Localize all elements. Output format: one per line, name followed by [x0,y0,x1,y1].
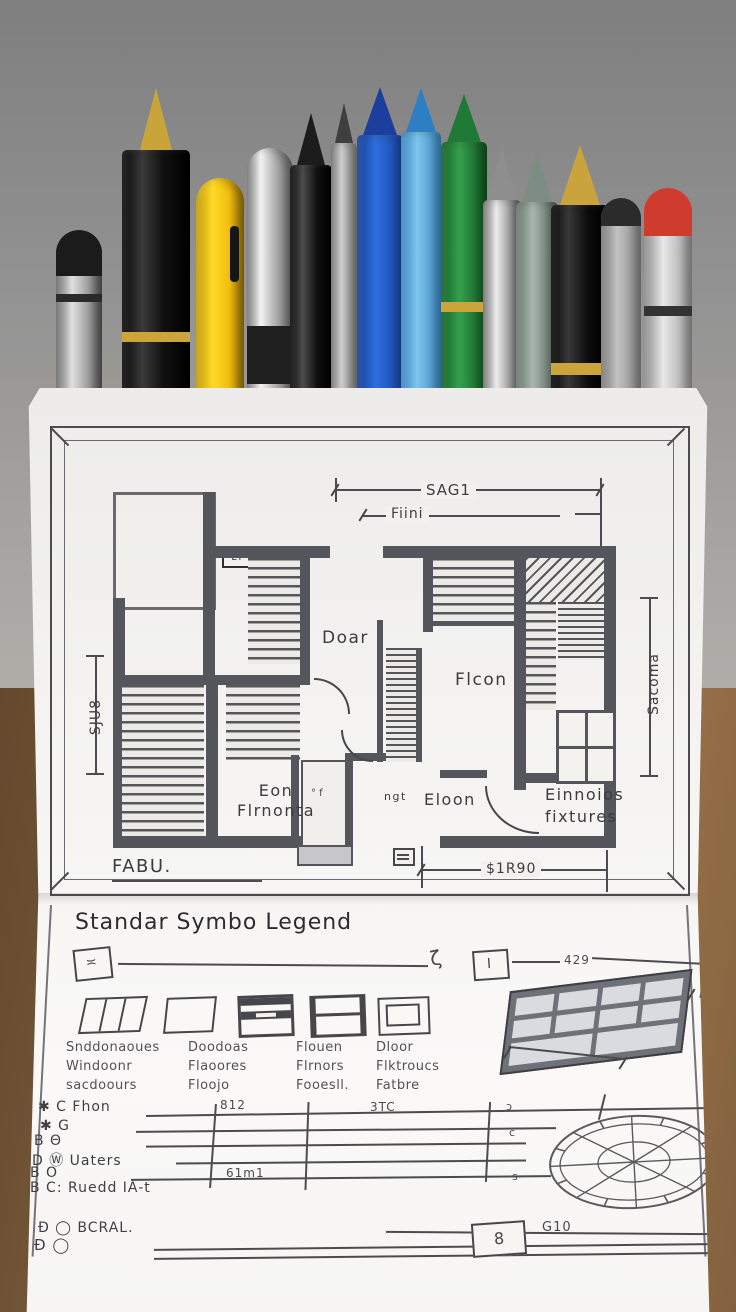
legend-caption: Flktroucs [376,1057,439,1076]
ruler-mid-box: I [472,949,510,981]
window-symbol [78,996,148,1034]
pen-chrome-band [247,326,293,384]
pen-cyan [401,132,441,412]
note-row-label: B O [30,1165,58,1181]
window-pane [594,1023,678,1055]
pen-cyan-tip [406,88,436,132]
window-pane [515,994,555,1016]
window-pane [512,1017,552,1039]
legend-caption: Windoonr [66,1057,160,1076]
pen-sage-tip [522,152,552,202]
window-pane [600,983,640,1005]
pen-slim-gray-tip [335,103,353,143]
pen-blue [357,135,403,412]
ruler-line [118,963,428,967]
compass-dial-icon [543,1099,725,1224]
legend-column-1: Snddonaoues Windoonr sacdoours [66,1038,160,1095]
pen-chrome [247,148,293,412]
pen-yellow [196,178,244,412]
window-pane [558,989,598,1011]
legend-caption: Flouen [296,1038,349,1057]
ruler-line [592,957,704,965]
fixture-symbol-filled [237,994,294,1038]
ruler-end-box: ≍ [72,946,113,982]
legend-column-2: Doodoas Flaoores Floojo [188,1038,248,1095]
window-grid-panes [508,978,683,1066]
paper-sheet: SAG1 Fiini SJU8- Sacoma $1R90 FABU. ET [26,388,710,1312]
note-dim: 812 [220,1098,246,1112]
ruler-squiggle-mark: ζ [428,945,444,971]
note-line [136,1127,556,1133]
legend-caption: Floojo [188,1076,248,1095]
footer-row-label: Ð ◯ BCRAL. [38,1220,134,1236]
legend-caption: Doodoas [188,1038,248,1057]
legend-caption: Fooesll. [296,1076,349,1095]
note-dim: 3TC [370,1100,396,1114]
pen-green-band [441,302,487,312]
footer-box-glyph: 8 [493,1229,504,1249]
note-line [131,1175,551,1181]
pen-red-tip-band [644,306,692,316]
note-row-label: B C: Ruedd IA-t [30,1180,151,1196]
legend-caption: Flrnors [296,1057,349,1076]
double-rect-inner [386,1003,421,1026]
note-row-label: ✱ C Fhon [38,1099,111,1115]
legend-column-4: Dloor Flktroucs Fatbre [376,1038,439,1095]
pen-silver-pencil-band [56,294,102,302]
note-dim: 61m1 [226,1166,265,1180]
pen-chrome-bullet-tip [488,148,516,200]
footer-box: 8 [471,1220,527,1258]
window-symbol-line [118,999,127,1031]
ruler-end-box-glyph: ≍ [85,955,97,971]
legend-caption: Snddonaoues [66,1038,160,1057]
window-pane [643,978,683,1000]
pen-black-fountain [122,150,190,412]
ruler-dim-label: 429 [564,953,590,967]
pen-black-gold-tip [560,145,600,205]
pen-silver-pencil [56,230,102,412]
fixture-mid-line [316,1012,360,1017]
pen-blue-tip [363,87,397,135]
edge-mark: s [512,1170,519,1183]
legend-caption: Flaoores [188,1057,248,1076]
footer-dim-label: G10 [542,1220,572,1235]
legend-column-3: Flouen Flrnors Fooesll. [296,1038,349,1095]
window-pane [555,1011,595,1033]
note-row-label: ✱ G [40,1118,70,1134]
window-pane [598,1006,638,1028]
legend-title: Standar Symbo Legend [75,910,352,935]
door-symbol [163,996,217,1034]
note-line [176,1159,526,1164]
edge-mark: c [509,1126,516,1139]
note-line [146,1142,526,1147]
window-symbol-line [98,999,107,1031]
ruler-mid-box-glyph: I [486,956,491,972]
pen-black-glossy-tip [297,113,325,165]
pen-black-fountain-tip [140,88,172,150]
pen-red-tip [644,188,692,412]
legend-caption: Dloor [376,1038,439,1057]
pen-red-tip-cap [644,188,692,236]
pen-green-tip [447,94,481,142]
edge-mark: ɔ [506,1100,513,1113]
window-grid-symbol [500,969,693,1075]
pen-silver-pencil-cap [56,230,102,276]
fixture-symbol-lined [309,994,366,1038]
footer-row-label: Ð ◯ [34,1236,70,1254]
pen-green [441,142,487,412]
fixture-fill-bar [240,997,290,1006]
legend-panel: Standar Symbo Legend ≍ ζ I 429 [26,388,710,1312]
double-rect-symbol [377,996,430,1036]
footer-double-line [154,1252,712,1260]
note-row-label: B Θ [34,1133,62,1149]
paper-fold [26,893,710,909]
pen-black-fountain-band [122,332,190,342]
window-pane [641,1001,681,1023]
pen-black-glossy [290,165,332,412]
legend-caption: sacdoours [66,1076,160,1095]
pen-yellow-band [230,226,239,282]
pens [0,0,736,412]
legend-caption: Fatbre [376,1076,439,1095]
fixture-fill-gap [256,1013,276,1018]
pen-slim-gray [331,143,357,412]
pen-gray [601,198,641,412]
pen-gray-cap [601,198,641,226]
footer-double-line [154,1243,712,1251]
ruler-line [512,961,560,963]
